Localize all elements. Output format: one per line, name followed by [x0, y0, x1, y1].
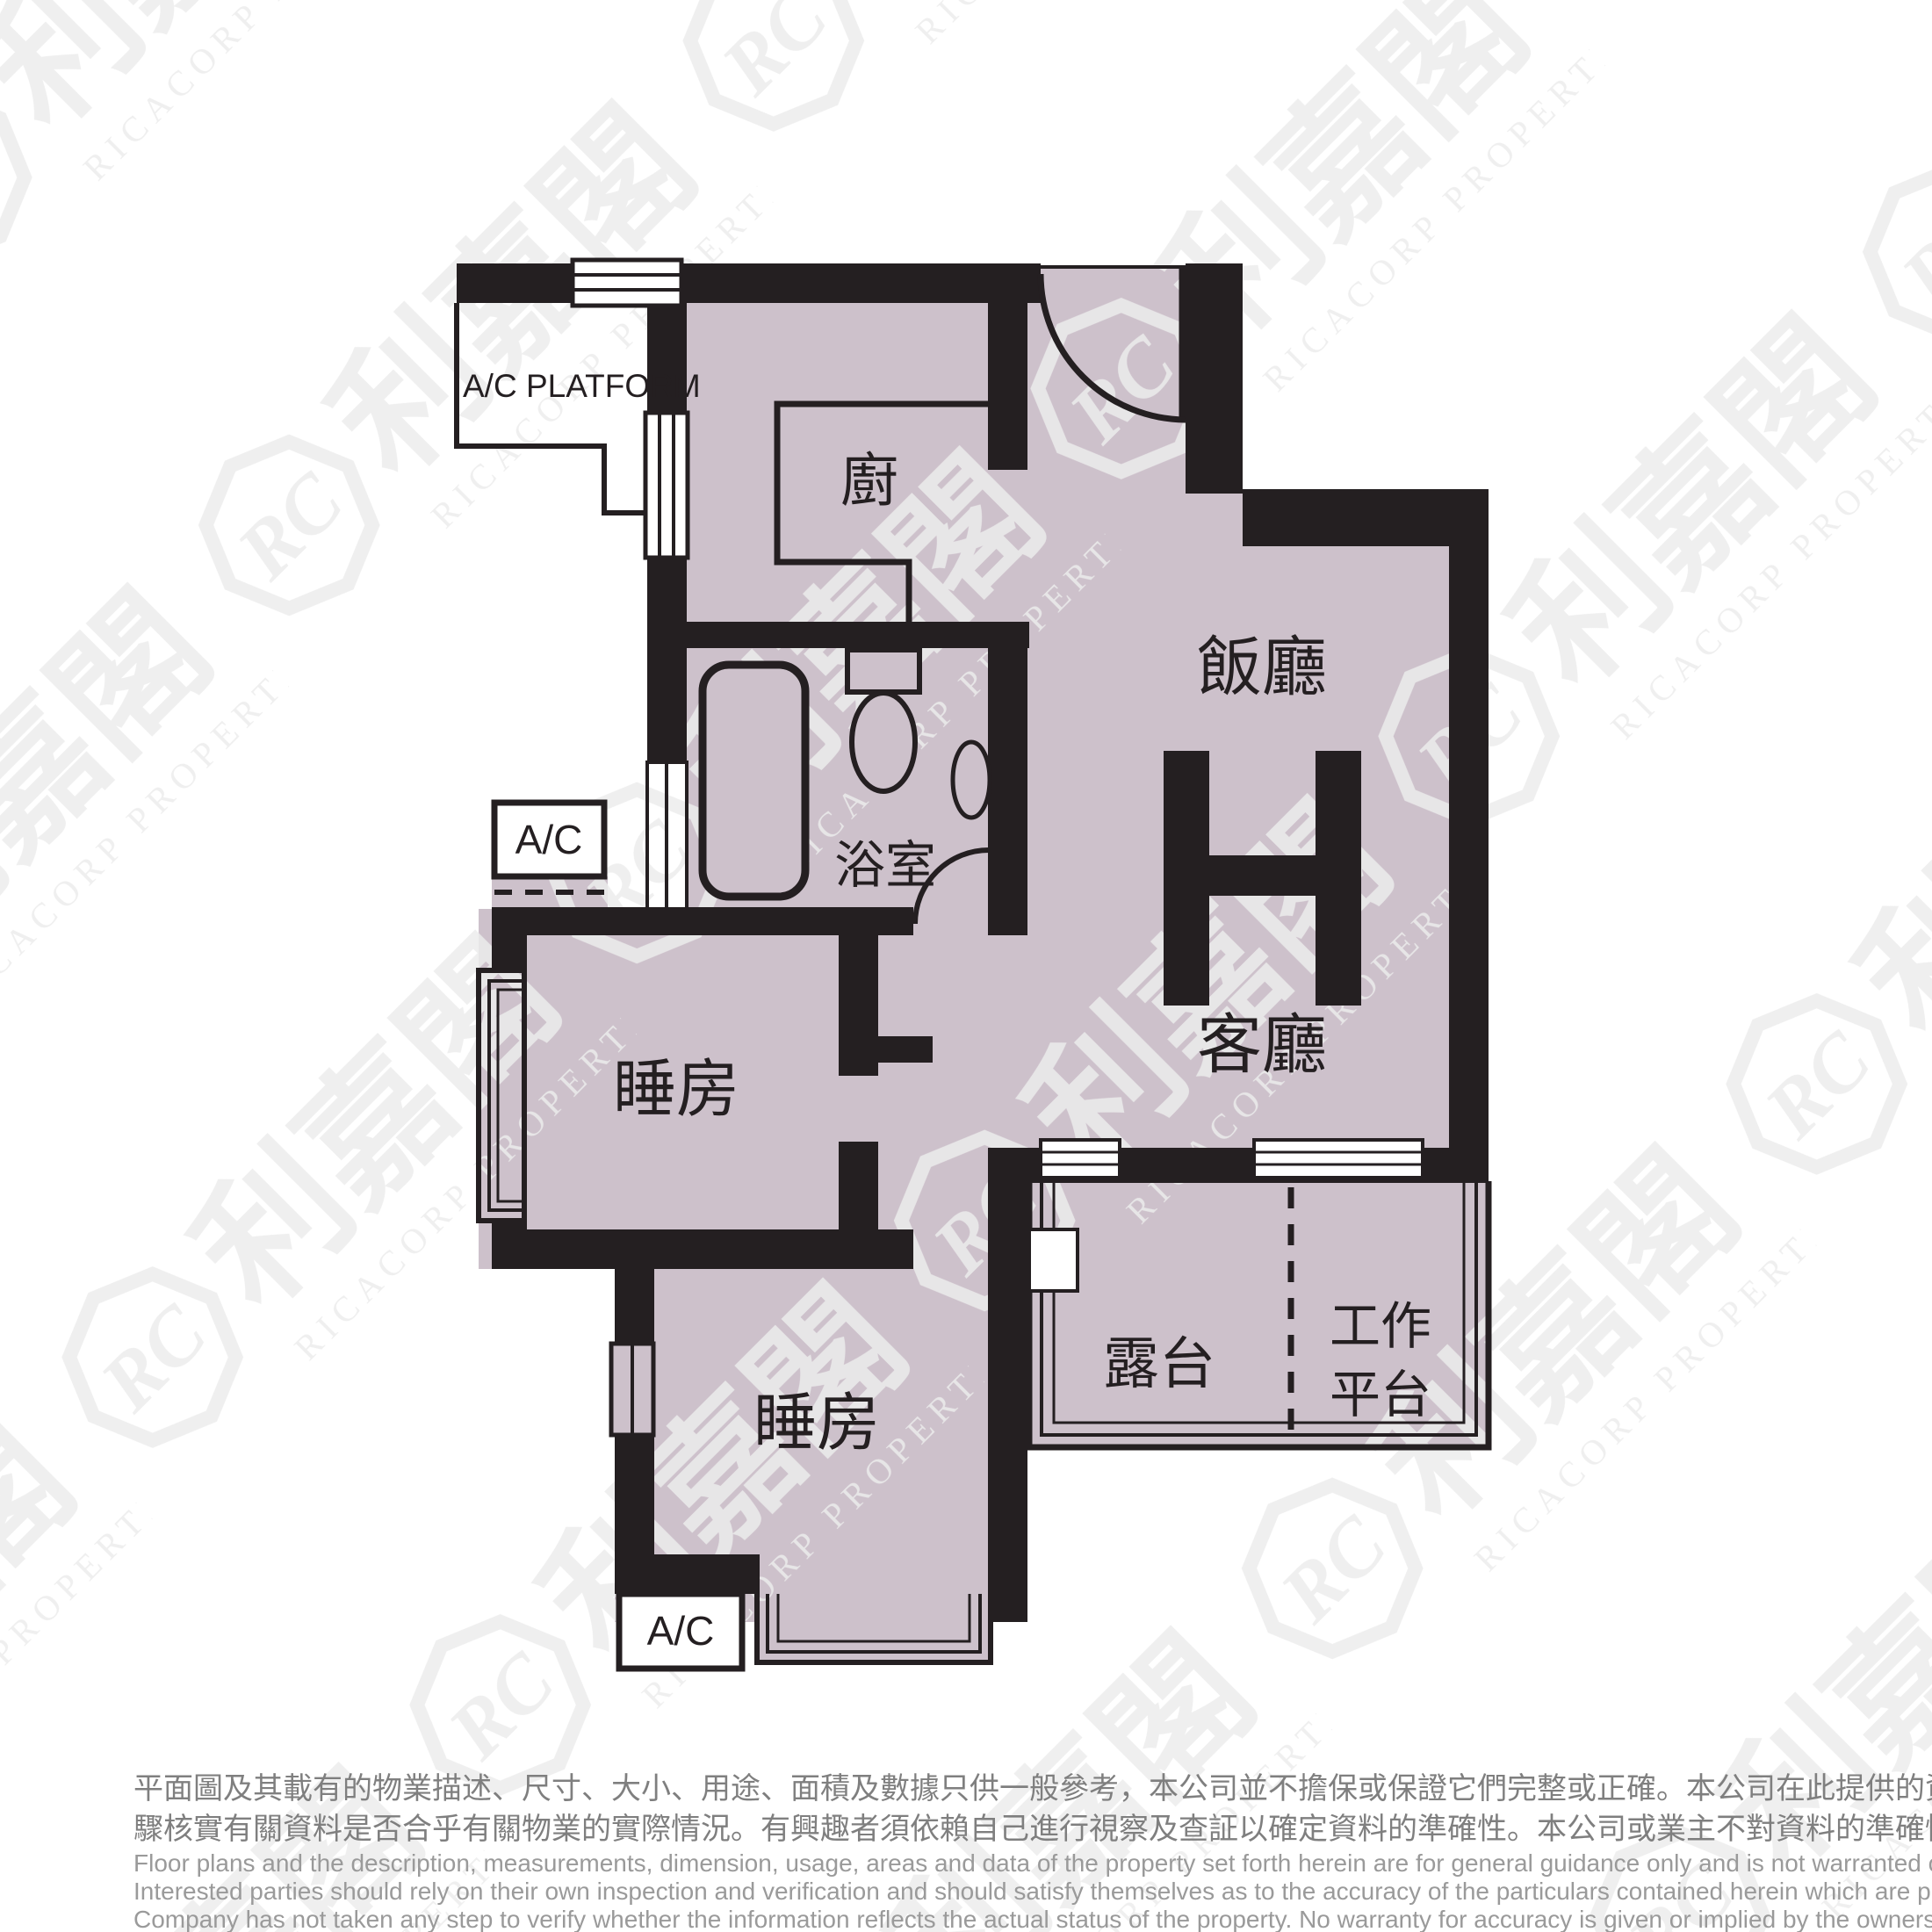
- wall-bedroom1-east-upper: [839, 935, 878, 1076]
- ac-bottom-label: A/C: [647, 1608, 715, 1654]
- label-bathroom: 浴室: [834, 837, 936, 894]
- wall-bedroom1-west-upper: [492, 909, 527, 970]
- label-ac-platform: A/C PLATFORM: [463, 368, 701, 404]
- living-window-right: [1254, 1140, 1423, 1178]
- wall-bedroom2-west-upper: [615, 1269, 654, 1344]
- unit-letter-bar-left: [1164, 751, 1209, 1006]
- entrance-door-leaf: [1179, 266, 1187, 420]
- living-window-left: [1041, 1140, 1120, 1178]
- disclaimer-en-line1: Floor plans and the description, measure…: [133, 1849, 1932, 1877]
- wall-bathroom-east: [988, 647, 1027, 935]
- toilet-tank: [847, 650, 919, 692]
- ac-mid-label: A/C: [515, 817, 583, 862]
- label-kitchen: 廚: [840, 448, 898, 513]
- disclaimer-en-line3: Company has not taken any step to verify…: [133, 1906, 1932, 1932]
- disclaimer-cn-line2: 驟核實有關資料是否合乎有關物業的實際情況。有興趣者須依賴自己進行視察及查証以確定…: [133, 1813, 1932, 1846]
- bathtub: [703, 665, 805, 897]
- wall-corridor-stub: [878, 1036, 933, 1063]
- wall-top: [457, 263, 1041, 303]
- floor-plan: RC 利嘉閣 RICACORP PROPERTIES: [0, 0, 1932, 1932]
- top-wall-window: [573, 260, 681, 306]
- disclaimer-block: 平面圖及其載有的物業描述、尺寸、大小、用途、面積及數據只供一般參考，本公司並不擔…: [133, 1772, 1932, 1932]
- label-utility-line1: 工作: [1330, 1298, 1431, 1355]
- ac-mid-box: A/C: [494, 803, 604, 876]
- toilet-bowl: [852, 693, 915, 791]
- ac-bottom-box: A/C: [619, 1594, 742, 1669]
- label-bedroom1: 睡房: [613, 1055, 739, 1125]
- wall-bedroom1-top: [492, 907, 913, 935]
- wall-dining-step: [1243, 489, 1489, 546]
- wall-bedroom2-west-lower: [615, 1435, 654, 1558]
- wall-entrance-right: [1186, 263, 1243, 494]
- label-balcony: 露台: [1103, 1332, 1215, 1395]
- wall-kitchen-east: [988, 303, 1027, 470]
- wall-bathroom-west: [647, 622, 687, 762]
- unit-letter-bar-right: [1316, 751, 1361, 1006]
- unit-letter-crossbar: [1209, 855, 1316, 896]
- bedroom2-window: [611, 1344, 653, 1435]
- wall-bathroom-top: [687, 622, 1029, 648]
- kitchen-window: [645, 413, 688, 558]
- label-dining: 飯廳: [1197, 631, 1327, 703]
- label-living: 客廳: [1197, 1008, 1327, 1081]
- wall-bedroom2-east: [988, 1148, 1027, 1622]
- wall-bedroom2-bottom: [615, 1554, 760, 1594]
- wall-bedroom1-bottom: [492, 1229, 619, 1269]
- sink: [953, 742, 990, 818]
- disclaimer-cn-line1: 平面圖及其載有的物業描述、尺寸、大小、用途、面積及數據只供一般參考，本公司並不擔…: [133, 1772, 1932, 1806]
- label-bedroom2: 睡房: [753, 1388, 880, 1459]
- wall-right: [1449, 546, 1489, 1181]
- wall-bedroom2-top: [615, 1229, 913, 1269]
- disclaimer-en-line2: Interested parties should rely on their …: [133, 1878, 1932, 1905]
- balcony-ac-plinth: [1029, 1229, 1078, 1291]
- label-utility-line2: 平台: [1330, 1366, 1431, 1424]
